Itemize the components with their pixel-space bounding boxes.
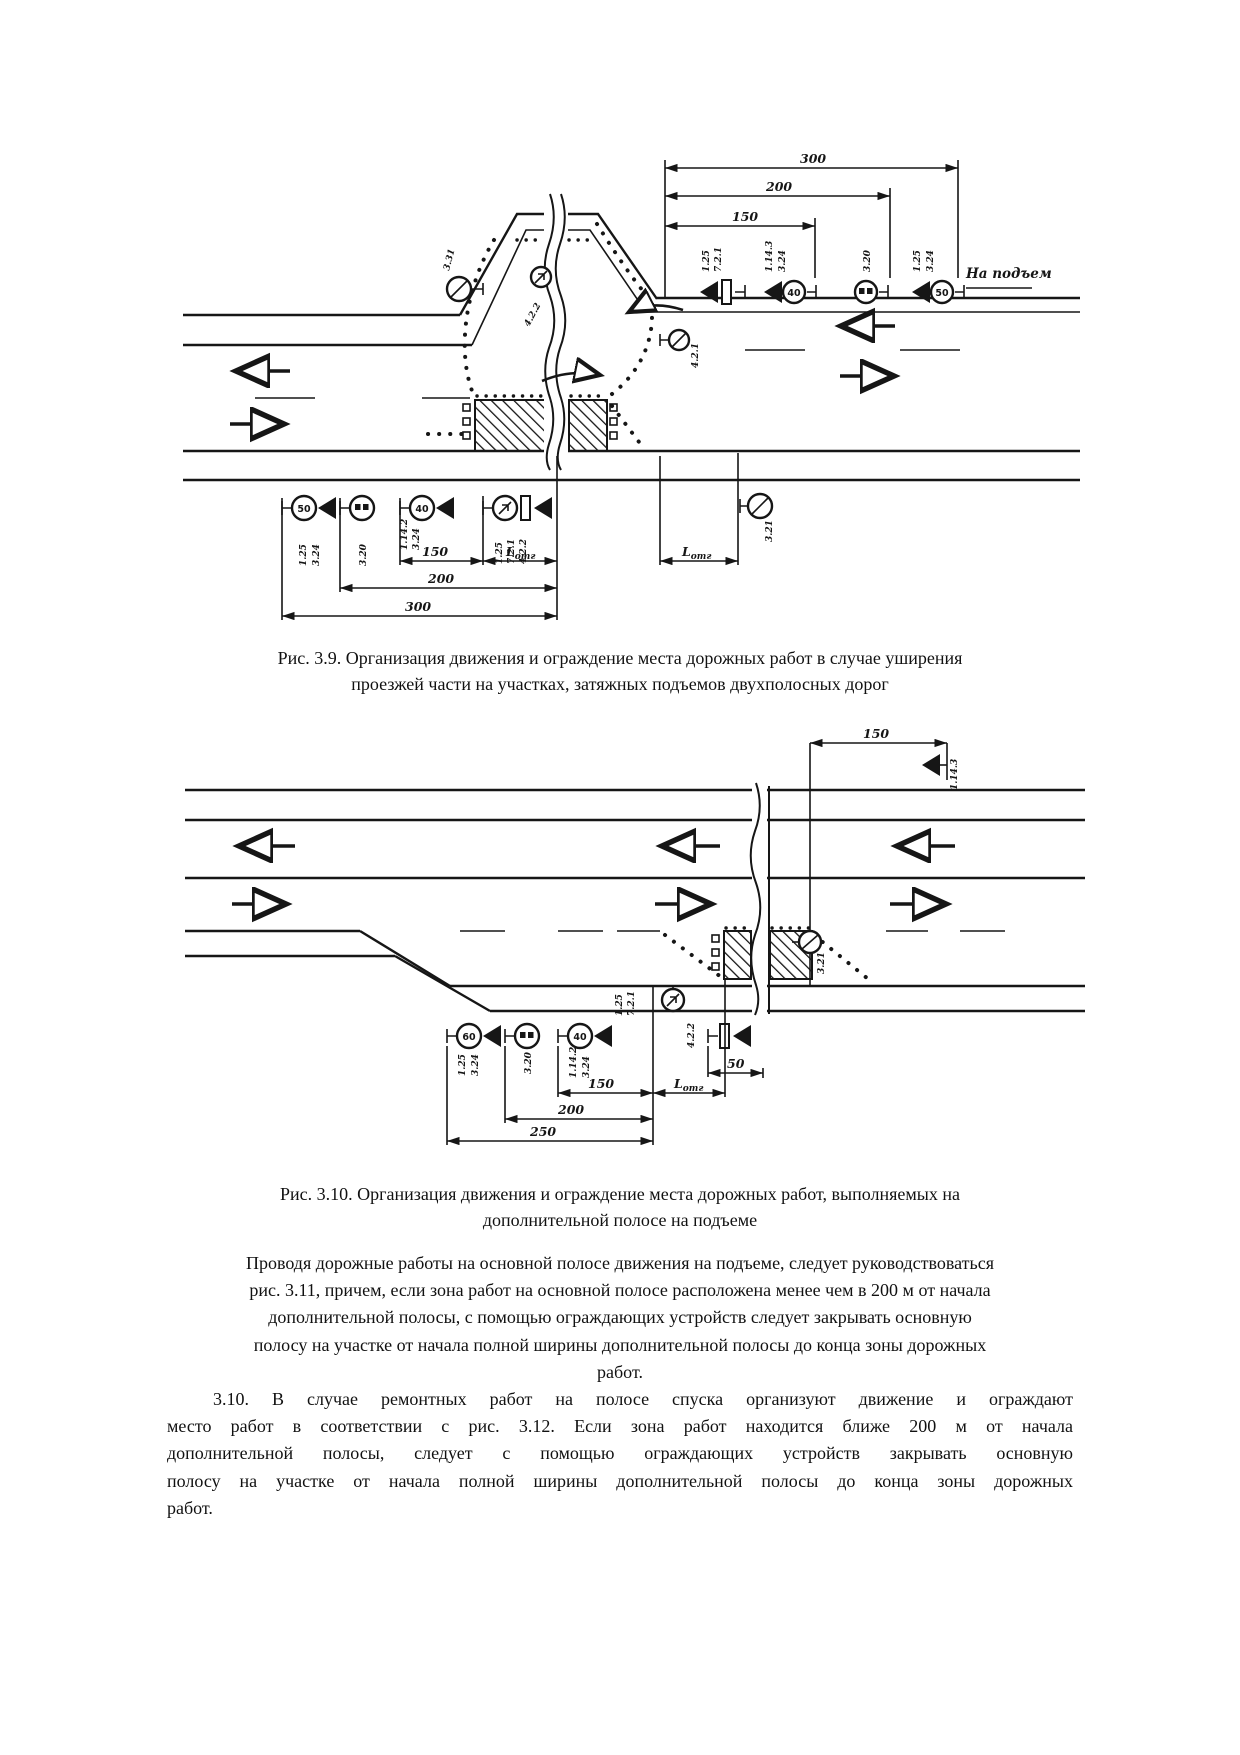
sign-1-14-3: 1.14.3 <box>922 754 960 790</box>
speed-40: 40 <box>415 504 429 515</box>
text-line: дополнительной полосы, следует с помощью… <box>167 1440 1073 1467</box>
sign-4-2-2: 1.25 7.2.1 4.2.2 <box>615 986 697 1048</box>
text-line: место работ в соответствии с рис. 3.12. … <box>167 1413 1073 1440</box>
sign-label: 3.20 <box>359 543 369 566</box>
sign-label: 1.25 <box>913 250 923 272</box>
fig39-dimensions-top: 300 200 150 <box>665 151 958 298</box>
direction-note: На подъем <box>965 266 1052 288</box>
sign-label: 1.25 <box>615 994 625 1016</box>
sign-label: 3.24 <box>471 1054 481 1076</box>
document-page: 300 200 150 3.31 4.2.2 4.2.1 1.25 7.2.1 <box>0 0 1240 1755</box>
dim-150-top: 150 <box>732 209 758 224</box>
sign-group-4 <box>708 1024 751 1048</box>
sign-group-top-2: 40 1.14.3 3.24 <box>764 241 816 303</box>
sign-group-top-3: 3.20 <box>855 249 888 303</box>
dim-50: 50 <box>727 1056 745 1071</box>
sign-group-top-1: 1.25 7.2.1 <box>700 247 745 304</box>
fig310-dimensions-top: 150 1.14.3 <box>810 726 960 986</box>
fig310-dimensions-bottom: 50 150 200 250 Lотг <box>447 978 763 1145</box>
sign-label: 3.24 <box>926 250 936 272</box>
fig39-break-line <box>544 192 568 474</box>
fig310-roads <box>185 790 1085 1011</box>
speed-60: 60 <box>462 1032 476 1043</box>
paragraph-2: 3.10. В случае ремонтных работ на полосе… <box>167 1386 1073 1522</box>
sign-label: 3.24 <box>312 544 322 566</box>
sign-label: 1.25 <box>299 544 309 566</box>
sign-label: 3.24 <box>582 1056 592 1078</box>
sign-1-14-3-label: 1.14.3 <box>950 759 960 790</box>
speed-40: 40 <box>573 1032 587 1043</box>
text-line: рис. 3.11, причем, если зона работ на ос… <box>167 1277 1073 1304</box>
dim-300-top: 300 <box>800 151 826 166</box>
dim-lotg-2: Lотг <box>681 544 711 562</box>
speed-40: 40 <box>787 288 801 299</box>
sign-group-2: 3.20 <box>505 1024 539 1074</box>
speed-50: 50 <box>935 288 949 299</box>
fig310-lane-arrows <box>232 846 955 904</box>
text-line: полосу на участке от начала полной ширин… <box>167 1468 1073 1495</box>
figure-3-10-caption: Рис. 3.10. Организация движения и огражд… <box>185 1181 1055 1233</box>
caption-line: Рис. 3.10. Организация движения и огражд… <box>185 1181 1055 1207</box>
dim-150-bottom: 150 <box>422 544 448 559</box>
sign-label: 1.14.3 <box>765 241 775 272</box>
sign-label: 3.20 <box>524 1051 534 1074</box>
sign-4-2-1-label: 4.2.1 <box>691 343 701 368</box>
fig39-signs-top: 3.31 4.2.2 4.2.1 1.25 7.2.1 40 1.14.3 3.… <box>442 241 1052 368</box>
sign-label: 1.25 <box>458 1054 468 1076</box>
text-line: Проводя дорожные работы на основной поло… <box>167 1250 1073 1277</box>
sign-4-2-2-label: 4.2.2 <box>523 302 544 329</box>
sign-label: 1.25 <box>702 250 712 272</box>
sign-3-21: 3.21 <box>740 494 775 542</box>
sign-label: 1.14.2 <box>400 519 410 550</box>
sign-group-3: 40 1.14.2 3.24 <box>558 1024 612 1078</box>
sign-label: 7.2.1 <box>627 991 637 1016</box>
fig39-roads <box>183 214 1080 480</box>
body-text: Проводя дорожные работы на основной поло… <box>167 1250 1073 1522</box>
figure-3-10-diagram: 150 1.14.3 60 1.25 3.24 3.20 40 <box>160 728 1105 1163</box>
sign-4-2-1: 4.2.1 <box>660 330 701 368</box>
fig310-break-line <box>751 780 769 1018</box>
fig39-work-zone <box>463 400 617 451</box>
dim-200-bottom: 200 <box>427 571 454 586</box>
sign-group-top-4: 50 1.25 3.24 <box>912 250 964 303</box>
sign-label: 7.2.1 <box>714 247 724 272</box>
sign-3-21-label: 3.21 <box>765 520 775 542</box>
text-line: полосу на участке от начала полной ширин… <box>167 1332 1073 1359</box>
dim-200: 200 <box>557 1102 584 1117</box>
speed-50: 50 <box>297 504 311 515</box>
sign-group-bot-2: 3.20 <box>340 496 374 566</box>
sign-group-bot-3: 40 1.14.2 3.24 <box>400 496 454 550</box>
text-line: работ. <box>167 1495 1073 1522</box>
note-na-podem: На подъем <box>965 266 1052 282</box>
figure-3-9-caption: Рис. 3.9. Организация движения и огражде… <box>185 645 1055 697</box>
sign-label: 3.24 <box>412 528 422 550</box>
text-line: дополнительной полосы, с помощью огражда… <box>167 1304 1073 1331</box>
dim-150-bottom: 150 <box>588 1076 614 1091</box>
sign-3-21-label: 3.21 <box>817 952 827 974</box>
fig39-dimensions-bottom: 150 200 300 Lотг Lотг <box>282 453 738 620</box>
sign-label: 3.24 <box>778 250 788 272</box>
caption-line: дополнительной полосе на подъеме <box>185 1207 1055 1233</box>
figure-3-9-diagram: 300 200 150 3.31 4.2.2 4.2.1 1.25 7.2.1 <box>160 138 1105 643</box>
text-line: работ. <box>167 1359 1073 1386</box>
sign-3-31: 3.31 <box>442 248 483 301</box>
paragraph-1: Проводя дорожные работы на основной поло… <box>167 1250 1073 1386</box>
dim-200-top: 200 <box>765 179 792 194</box>
caption-line: Рис. 3.9. Организация движения и огражде… <box>185 645 1055 671</box>
dim-lotg: Lотг <box>673 1076 703 1094</box>
sign-3-31-label: 3.31 <box>442 248 457 272</box>
sign-label: 1.14.2 <box>569 1047 579 1078</box>
sign-4-2-2-label: 4.2.2 <box>687 1023 697 1048</box>
sign-group-1: 60 1.25 3.24 <box>447 1024 501 1076</box>
sign-label: 3.20 <box>863 249 873 272</box>
caption-line: проезжей части на участках, затяжных под… <box>185 671 1055 697</box>
barrier-icons <box>712 935 719 970</box>
dim-250: 250 <box>529 1124 556 1139</box>
dim-300-bottom: 300 <box>405 599 431 614</box>
text-line: 3.10. В случае ремонтных работ на полосе… <box>167 1386 1073 1413</box>
sign-group-bot-1: 50 1.25 3.24 <box>282 496 336 566</box>
dim-150-top: 150 <box>863 726 889 741</box>
